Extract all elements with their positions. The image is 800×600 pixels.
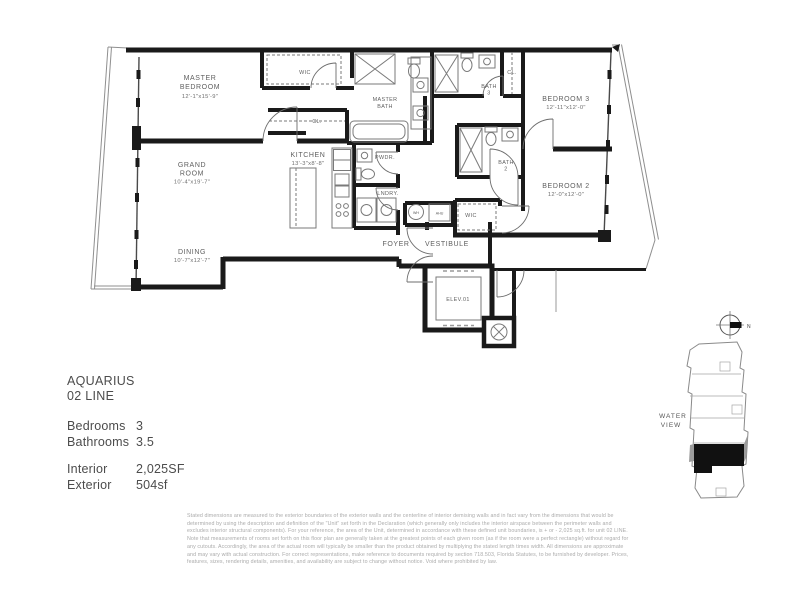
room-label-closet-bedroom3: CL.: [507, 70, 517, 76]
water-view-label: WATER: [659, 413, 687, 420]
exterior-value: 504sf: [136, 478, 168, 494]
room-label-vestibule: VESTIBULE: [425, 241, 469, 248]
keyplan: N WATER VIEW: [659, 311, 751, 498]
bedrooms-label: Bedrooms: [67, 419, 136, 435]
room-label-bath3: BATH: [481, 84, 497, 90]
room-label-bath3-2: 3: [487, 91, 490, 97]
room-label-closet-hall: CL.: [312, 119, 322, 125]
room-label-powder: PWDR.: [375, 155, 395, 161]
door-arcs: [263, 63, 553, 297]
bathrooms-value: 3.5: [136, 435, 154, 451]
stat-row-interior: Interior 2,025SF: [67, 462, 185, 478]
room-label-air-handler: AHU: [436, 212, 444, 216]
water-view-label-2: VIEW: [661, 422, 682, 429]
room-label-wic-master: WIC: [299, 70, 311, 76]
room-label-bath2-2: 2: [504, 167, 507, 173]
unit-name: AQUARIUS: [67, 374, 135, 389]
disclaimer-text: Stated dimensions are measured to the ex…: [187, 513, 634, 567]
room-label-master-bedroom-2: BEDROOM: [180, 84, 220, 91]
exterior-label: Exterior: [67, 478, 136, 494]
room-label-bedroom3: BEDROOM 3: [542, 96, 589, 103]
room-label-water-heater: WH: [413, 211, 419, 215]
unit-title-block: AQUARIUS 02 LINE: [67, 374, 135, 404]
keyplan-building: [687, 342, 748, 498]
stat-row-bathrooms: Bathrooms 3.5: [67, 435, 154, 451]
room-dims-master-bedroom: 12'-1"x15'-9": [182, 94, 218, 100]
room-label-master-bedroom: MASTER: [184, 75, 217, 82]
north-compass-icon: N: [716, 311, 751, 339]
floorplan-page: MASTER BEDROOM 12'-1"x15'-9" WIC MASTER …: [0, 0, 800, 600]
unit-stats-rooms: Bedrooms 3 Bathrooms 3.5: [67, 419, 154, 450]
interior-value: 2,025SF: [136, 462, 185, 478]
balcony-outlines: [91, 45, 659, 290]
north-label: N: [747, 324, 751, 330]
room-label-dining: DINING: [178, 249, 206, 256]
stat-row-bedrooms: Bedrooms 3: [67, 419, 154, 435]
room-label-foyer: FOYER: [382, 241, 409, 248]
room-label-laundry: LNDRY.: [377, 191, 398, 197]
trash-room: [484, 318, 514, 346]
unit-stats-area: Interior 2,025SF Exterior 504sf: [67, 462, 185, 493]
room-label-master-bath-2: BATH: [377, 104, 393, 110]
room-dims-kitchen: 13'-3"x8'-8": [292, 161, 325, 167]
room-label-bedroom2: BEDROOM 2: [542, 183, 589, 190]
floorplan-drawing: MASTER BEDROOM 12'-1"x15'-9" WIC MASTER …: [0, 0, 800, 600]
interior-label: Interior: [67, 462, 136, 478]
room-label-wic-bedroom2: WIC: [465, 213, 477, 219]
unit-line: 02 LINE: [67, 389, 135, 404]
room-label-master-bath: MASTER: [373, 97, 398, 103]
room-dims-bedroom3: 12'-11"x12'-0": [546, 105, 585, 111]
bathrooms-label: Bathrooms: [67, 435, 136, 451]
room-label-grand-room: GRAND: [178, 162, 206, 169]
room-label-grand-room-2: ROOM: [180, 171, 204, 178]
keyplan-unit-highlight: [694, 444, 744, 473]
stat-row-exterior: Exterior 504sf: [67, 478, 185, 494]
room-label-kitchen: KITCHEN: [291, 152, 326, 159]
room-dims-bedroom2: 12'-0"x12'-0": [548, 192, 584, 198]
room-label-bath2: BATH: [498, 160, 514, 166]
room-dims-grand-room: 10'-4"x19'-7": [174, 180, 210, 186]
room-label-elevator: ELEV.01: [446, 297, 470, 303]
room-dims-dining: 10'-7"x12'-7": [174, 258, 210, 264]
bedrooms-value: 3: [136, 419, 143, 435]
